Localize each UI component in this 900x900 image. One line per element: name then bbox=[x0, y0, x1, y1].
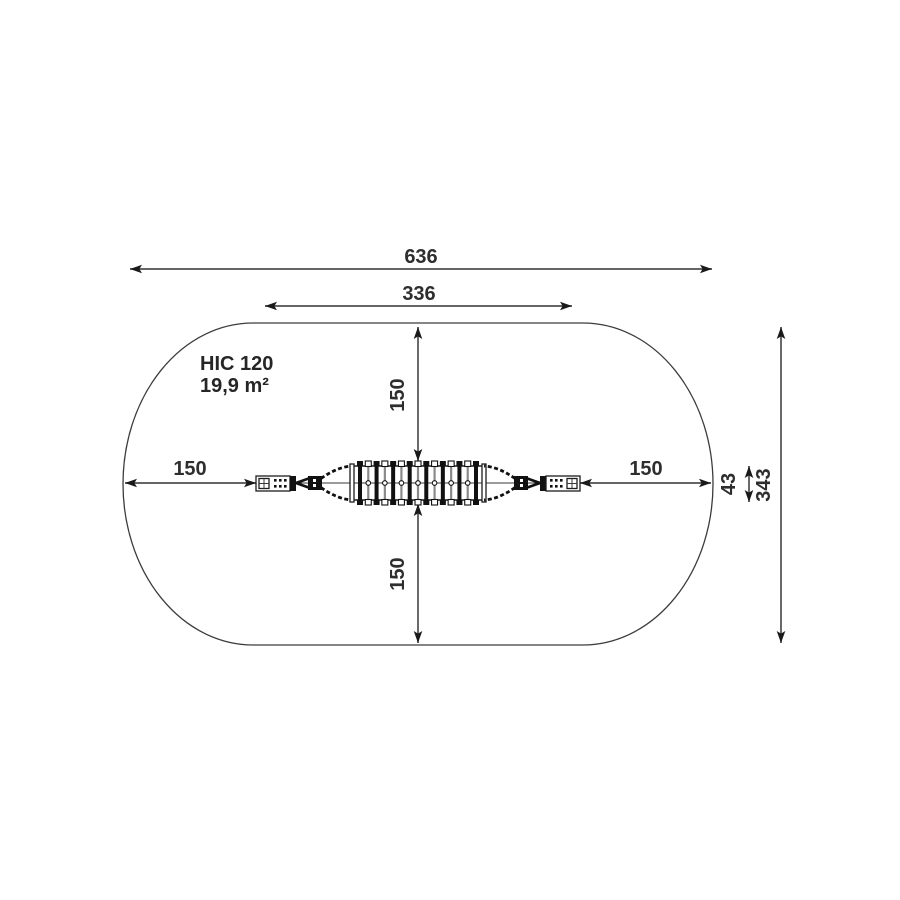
right-top-rope bbox=[484, 466, 515, 479]
dim-overall-width: 636 bbox=[130, 246, 712, 269]
dim-top-clearance: 150 bbox=[387, 327, 418, 461]
left-anchor bbox=[256, 476, 296, 491]
ladder-rungs bbox=[357, 461, 479, 505]
dim-overall-width-label: 636 bbox=[404, 246, 437, 268]
drawing-canvas: HIC 120 19,9 m² 636 336 150 150 150 bbox=[0, 0, 900, 900]
safety-zone-diagram: HIC 120 19,9 m² 636 336 150 150 150 bbox=[0, 0, 900, 900]
dim-left-clearance-label: 150 bbox=[173, 458, 206, 480]
climbing-equipment-top-view bbox=[256, 461, 580, 505]
dim-equipment-depth-label: 43 bbox=[718, 473, 740, 495]
dim-equipment-width: 336 bbox=[265, 283, 572, 306]
dim-overall-depth-label: 343 bbox=[753, 468, 775, 501]
dim-right-clearance: 150 bbox=[580, 458, 711, 483]
right-bottom-rope bbox=[484, 488, 515, 501]
dim-bottom-clearance: 150 bbox=[387, 504, 418, 643]
dim-right-clearance-label: 150 bbox=[629, 458, 662, 480]
area-label: 19,9 m² bbox=[200, 375, 269, 397]
hic-label: HIC 120 bbox=[200, 353, 273, 375]
dim-top-clearance-label: 150 bbox=[387, 378, 409, 411]
dim-equipment-depth: 43 bbox=[718, 466, 749, 502]
right-anchor bbox=[540, 476, 580, 491]
dim-equipment-width-label: 336 bbox=[402, 283, 435, 305]
dim-bottom-clearance-label: 150 bbox=[387, 557, 409, 590]
dim-overall-depth: 343 bbox=[753, 327, 781, 643]
left-bottom-rope bbox=[321, 488, 352, 501]
left-top-rope bbox=[321, 466, 352, 479]
dim-left-clearance: 150 bbox=[125, 458, 256, 483]
